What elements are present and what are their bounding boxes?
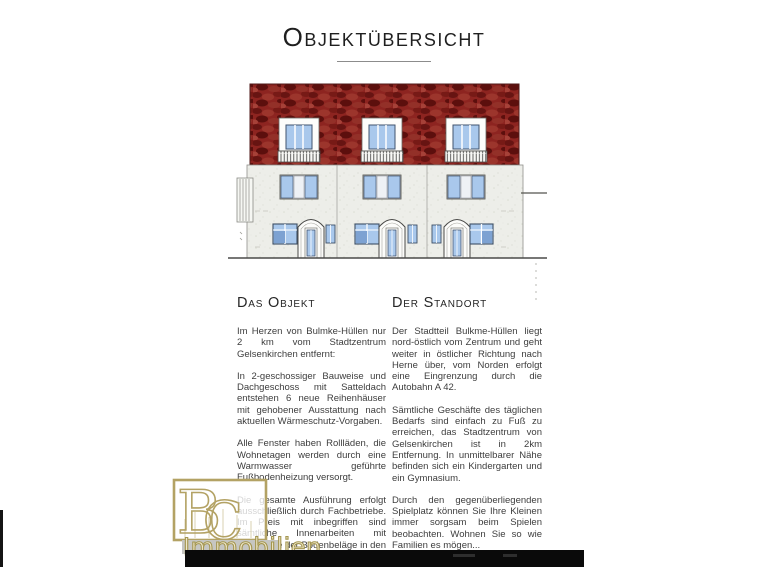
bar-smudge — [503, 554, 517, 557]
section-der-standort: Der Standort Der Stadtteil Bulkme-Hüllen… — [392, 295, 542, 562]
paragraph: Sämtliche Geschäfte des täglichen Bedarf… — [392, 405, 542, 484]
expose-page: Objektübersicht — [0, 0, 768, 567]
scan-edge-sliver — [0, 510, 3, 567]
upper-floor-window — [363, 175, 401, 199]
entrance-door — [298, 220, 324, 259]
ground-floor-window-narrow — [408, 225, 417, 243]
paragraph: Der Stadtteil Bulkme-Hüllen liegt nord-ö… — [392, 326, 542, 394]
elevation-drawing — [225, 76, 555, 308]
balcony-railing — [278, 151, 320, 162]
balcony-railing — [361, 151, 403, 162]
entrance-door — [444, 220, 470, 259]
title-divider — [337, 61, 431, 62]
paragraph: In 2-geschossiger Bauweise und Dachgesch… — [237, 371, 386, 427]
paragraph: Im Herzen von Bulmke-Hüllen nur 2 km vom… — [237, 326, 386, 360]
dormer-window — [278, 118, 320, 162]
page-title: Objektübersicht — [0, 22, 768, 53]
bar-smudge — [453, 554, 475, 557]
ground-floor-window-narrow — [326, 225, 335, 243]
section-heading: Der Standort — [392, 295, 542, 311]
ground-floor-window-wide — [355, 224, 379, 244]
balcony-railing — [445, 151, 487, 162]
ground-floor-window-narrow — [432, 225, 441, 243]
scan-black-bar — [185, 550, 584, 567]
paragraph: Durch den gegenüberliegenden Spielplatz … — [392, 495, 542, 551]
ground-floor-window-wide — [273, 224, 297, 244]
entrance-door — [379, 220, 405, 259]
dormer-window — [445, 118, 487, 162]
ground-floor-window-wide — [470, 224, 493, 244]
upper-floor-window — [280, 175, 318, 199]
upper-floor-window — [447, 175, 485, 199]
section-heading: Das Objekt — [237, 295, 386, 311]
dormer-window — [361, 118, 403, 162]
